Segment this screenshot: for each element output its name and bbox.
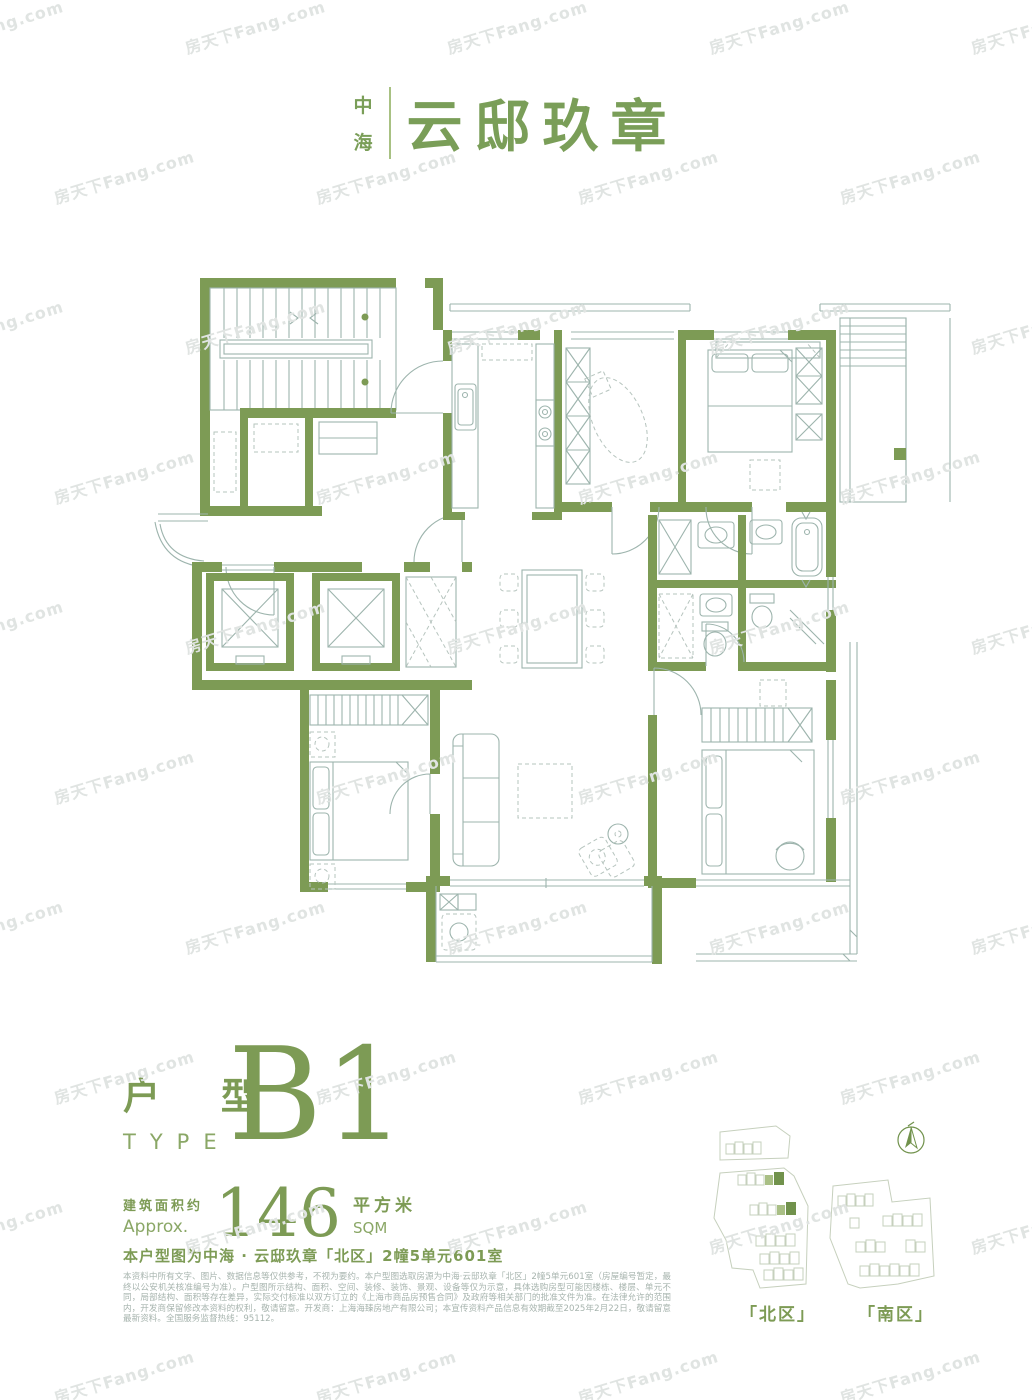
bedroom3-door-arc bbox=[390, 774, 430, 814]
round-chair bbox=[776, 842, 804, 870]
living-dining bbox=[450, 570, 644, 888]
study-wardrobe bbox=[566, 348, 590, 484]
watermark-text: 房天下Fang.com bbox=[968, 593, 1032, 659]
area-label-en: Approx. bbox=[123, 1217, 203, 1237]
brand-logo-prefix: 中 海 bbox=[353, 91, 372, 155]
watermark-text: 房天下Fang.com bbox=[575, 1043, 722, 1109]
elevator-lobby bbox=[192, 514, 472, 690]
watermark-text: 房天下Fang.com bbox=[968, 893, 1032, 959]
duct-shaft bbox=[406, 577, 456, 667]
dining-set bbox=[500, 570, 604, 668]
bathroom-2 bbox=[750, 512, 824, 644]
unit-door-arc bbox=[414, 514, 462, 562]
master-bedroom bbox=[648, 668, 850, 888]
master-wardrobe bbox=[702, 708, 812, 742]
watermark-text: 房天下Fang.com bbox=[182, 0, 329, 59]
brochure-page: { "watermark": { "text": "房天下Fang.com" }… bbox=[0, 0, 1032, 1400]
kitchen bbox=[391, 330, 562, 520]
balcony-south bbox=[426, 876, 662, 964]
watermark-text: 房天下Fang.com bbox=[968, 0, 1032, 59]
washing-machine-icon bbox=[442, 914, 476, 950]
site-label-south: 「南区」 bbox=[858, 1300, 934, 1325]
highlighted-buildings bbox=[765, 1172, 796, 1215]
watermark-text: 房天下Fang.com bbox=[575, 1343, 722, 1400]
bed-2 bbox=[708, 350, 792, 452]
watermark-text: 房天下Fang.com bbox=[837, 1343, 984, 1400]
bed-3 bbox=[310, 762, 408, 860]
watermark-text: 房天下Fang.com bbox=[0, 593, 66, 659]
brand-logo: 中 海 云邸玖章 bbox=[0, 82, 1032, 163]
unit-note: 本户型图为中海 · 云邸玖章「北区」2幢5单元601室 bbox=[123, 1245, 503, 1266]
kitchen-door-arc bbox=[391, 361, 443, 413]
nightstand bbox=[750, 460, 780, 490]
watermark-text: 房天下Fang.com bbox=[0, 1193, 66, 1259]
watermark-text: 房天下Fang.com bbox=[968, 293, 1032, 359]
type-code: B1 bbox=[228, 1032, 408, 1160]
bathrooms bbox=[648, 512, 836, 672]
watermark-text: 房天下Fang.com bbox=[51, 1343, 198, 1400]
elevator-shaft-1 bbox=[210, 577, 290, 667]
exterior-ledges bbox=[450, 304, 950, 311]
compass-icon bbox=[898, 1122, 924, 1153]
elevator-shaft-2 bbox=[316, 577, 396, 667]
floor-lamp bbox=[608, 824, 628, 844]
rug bbox=[518, 764, 572, 818]
bathroom-1 bbox=[659, 520, 734, 658]
bathtub-icon bbox=[792, 518, 822, 576]
master-bed bbox=[702, 750, 814, 874]
watermark-text: 房天下Fang.com bbox=[0, 0, 66, 59]
logo-char-bottom: 海 bbox=[353, 128, 372, 155]
logo-name: 云邸玖章 bbox=[407, 82, 679, 163]
balcony-east bbox=[840, 318, 950, 502]
stairwell bbox=[155, 278, 443, 567]
master-door-arc bbox=[654, 668, 701, 715]
bedroom-3 bbox=[300, 690, 440, 892]
watermark-text: 房天下Fang.com bbox=[0, 293, 66, 359]
area-unit-en: SQM bbox=[353, 1219, 416, 1237]
oval-table bbox=[577, 369, 659, 472]
sofa bbox=[453, 734, 499, 866]
area-unit-cn: 平方米 bbox=[353, 1191, 416, 1216]
toilet-icon-2 bbox=[750, 594, 774, 628]
bedroom3-wardrobe bbox=[310, 695, 428, 725]
siteplan-block: 「北区」 「南区」 bbox=[698, 1118, 998, 1334]
bedroom2-wardrobe bbox=[796, 348, 822, 440]
stove-icon bbox=[536, 400, 554, 446]
site-label-north: 「北区」 bbox=[740, 1300, 816, 1325]
watermark-text: 房天下Fang.com bbox=[444, 0, 591, 59]
watermark-text: 房天下Fang.com bbox=[706, 0, 853, 59]
watermark-text: 房天下Fang.com bbox=[313, 1343, 460, 1400]
floor-plan bbox=[150, 262, 970, 987]
north-parcel-top bbox=[720, 1126, 790, 1160]
watermark-text: 房天下Fang.com bbox=[0, 893, 66, 959]
area-block: 建筑面积约 Approx. 146 平方米 SQM bbox=[123, 1184, 416, 1243]
area-label-cn: 建筑面积约 bbox=[123, 1195, 203, 1214]
area-value: 146 bbox=[215, 1184, 341, 1243]
logo-char-top: 中 bbox=[353, 91, 372, 118]
logo-divider bbox=[389, 87, 391, 159]
watermark-text: 房天下Fang.com bbox=[837, 1043, 984, 1109]
shower-door bbox=[790, 610, 824, 644]
disclaimer-text: 本资料中所有文字、图片、数据信息等仅供参考，不视为要约。本户型图选取房源为中海·… bbox=[123, 1272, 671, 1325]
